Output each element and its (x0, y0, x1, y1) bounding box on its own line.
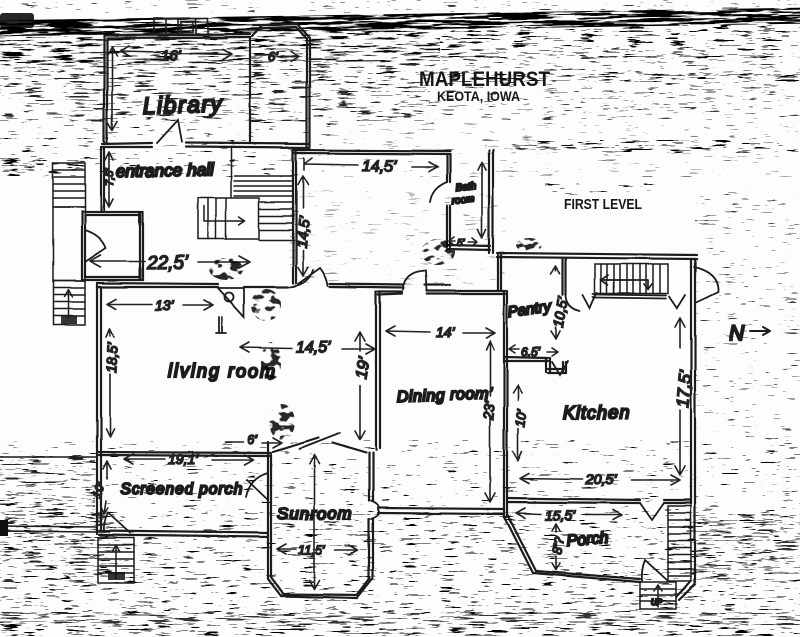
svg-text:Sunroom: Sunroom (277, 504, 353, 523)
svg-text:Pantry: Pantry (507, 298, 554, 321)
svg-text:19’: 19’ (353, 355, 374, 379)
svg-text:UP: UP (651, 598, 663, 607)
svg-text:Porch: Porch (566, 530, 609, 550)
svg-text:KEOTA, IOWA: KEOTA, IOWA (437, 88, 520, 104)
svg-text:14,5’: 14,5’ (362, 158, 397, 175)
svg-text:13’: 13’ (155, 297, 175, 313)
svg-text:20,5’: 20,5’ (585, 471, 617, 487)
svg-text:living room: living room (168, 361, 277, 381)
svg-text:23’: 23’ (480, 399, 498, 421)
svg-text:Dining room’: Dining room’ (397, 386, 493, 406)
svg-text:8’?: 8’? (549, 535, 567, 555)
svg-text:Screened porch: Screened porch (120, 481, 243, 498)
svg-text:22,5’: 22,5’ (146, 253, 189, 274)
svg-text:10’: 10’ (512, 407, 529, 427)
svg-text:19,1’: 19,1’ (168, 451, 199, 467)
svg-text:17,5’: 17,5’ (673, 370, 695, 409)
svg-text:6,5’: 6,5’ (521, 345, 541, 359)
svg-text:FIRST LEVEL: FIRST LEVEL (564, 196, 642, 213)
svg-text:7,5’: 7,5’ (104, 168, 116, 186)
svg-text:14,5’: 14,5’ (296, 339, 331, 356)
svg-text:Kitchen: Kitchen (563, 403, 630, 423)
svg-text:10,5’: 10,5’ (550, 295, 571, 329)
svg-text:18,5’: 18,5’ (103, 341, 121, 373)
svg-text:N: N (729, 322, 745, 345)
svg-text:entrance hall: entrance hall (116, 160, 215, 181)
svg-text:6’: 6’ (268, 49, 279, 64)
svg-text:14’: 14’ (436, 324, 456, 340)
svg-text:5’: 5’ (457, 238, 466, 249)
svg-text:16’: 16’ (161, 47, 182, 64)
svg-text:14,5’: 14,5’ (294, 215, 313, 249)
svg-text:Bath: Bath (455, 181, 477, 194)
svg-text:15,5’: 15,5’ (545, 507, 576, 523)
svg-text:11,5’: 11,5’ (298, 542, 326, 557)
svg-text:6’: 6’ (247, 432, 258, 447)
svg-text:Library: Library (142, 90, 224, 119)
